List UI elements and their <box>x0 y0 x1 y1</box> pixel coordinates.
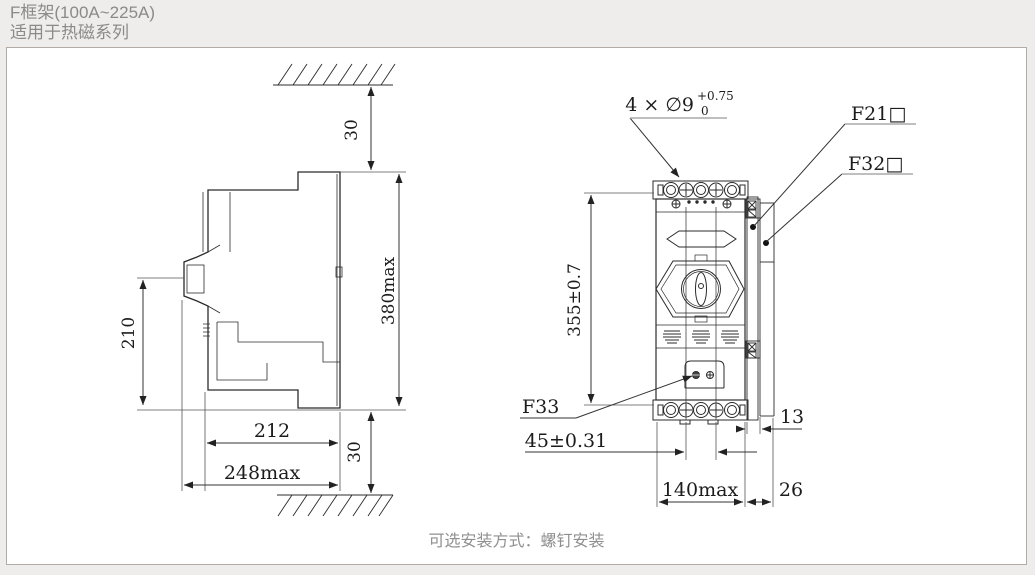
f32-leader-dot <box>763 240 769 246</box>
side-profile-details <box>187 174 342 406</box>
label-f33: F33 <box>522 396 559 418</box>
rotary-handle <box>656 255 744 322</box>
label-f32: F32□ <box>848 153 903 175</box>
nameplate <box>667 231 736 247</box>
dim-hole-spacing: 45±0.31 <box>525 430 607 452</box>
dim-front-height-355: 355±0.7 <box>565 263 585 337</box>
accessory-cover <box>685 361 724 388</box>
vent-grilles <box>663 331 739 343</box>
dim-bottom-gap: 30 <box>345 441 365 463</box>
dim-depth: 212 <box>254 420 290 442</box>
mounting-caption: 可选安装方式：螺钉安装 <box>6 527 1027 551</box>
dim-top-gap: 30 <box>342 119 362 141</box>
label-mounting-holes: 4 × ∅9 <box>625 94 694 116</box>
bottom-terminal-block <box>653 400 748 424</box>
label-holes-tol-upper: +0.75 <box>697 89 734 103</box>
floor-hatch <box>277 495 393 516</box>
dim-offset-26: 26 <box>779 479 803 501</box>
dim-depth-max: 248max <box>224 462 301 484</box>
side-accessory-strips <box>746 197 774 420</box>
dim-width-max: 140max <box>662 479 739 501</box>
label-f21: F21□ <box>851 103 906 125</box>
top-terminal-block <box>653 181 748 208</box>
label-holes-tol-lower: 0 <box>701 104 709 118</box>
dim-offset-13: 13 <box>780 406 804 428</box>
front-body <box>656 199 745 400</box>
side-view <box>137 64 406 516</box>
dim-height-max: 380max <box>379 256 399 325</box>
ceiling-hatch <box>273 64 395 85</box>
dim-front-height: 210 <box>119 317 139 349</box>
technical-drawing: 30 30 380max 210 212 248max <box>0 0 1035 575</box>
side-profile-outline <box>184 172 340 408</box>
